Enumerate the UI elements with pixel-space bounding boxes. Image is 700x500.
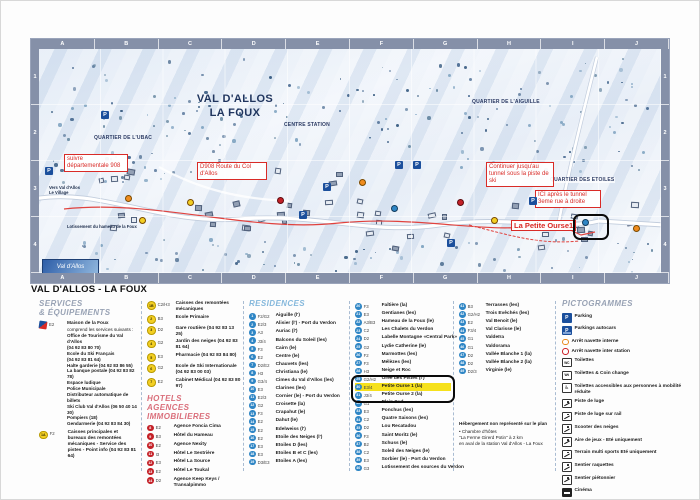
maison-foux-services: comprend les services suivants :Office d… [67,327,137,427]
grid-label: J [605,273,669,283]
map-grid-rows-left: 1234 [31,49,39,273]
legend-row: 40G3Lotissement des sources du Verdon [355,464,451,472]
legend-row: 41B3Terrasses (les) [459,302,553,310]
wc-icon: WC [562,358,572,368]
legend-marker: 16 [249,435,256,442]
legend-row: 4G2Jardin des neiges (04 92 83 81 64) [147,339,241,351]
note-hebergement: Hébergement non représenté sur le plan •… [459,421,553,448]
grid-ref: E3 [364,457,380,463]
grid-ref: F3 [258,410,274,416]
legend-marker: 49 [459,368,466,375]
pictogram-row: PParkings autocars [562,326,694,336]
legend-marker: 48 [459,360,466,367]
pictogram-row: W¢Toilettes & Coin change [562,371,694,381]
legend-item-label: Hôtel La Source [174,459,211,465]
callout-ici-apres-tunnel: ICI après le tunnel 3eme rue à droite [535,190,601,208]
map-marker-blue [582,219,589,226]
legend-row: 35D2Lou Recatadou [355,423,451,431]
legend-item-label: Hôtel Le Toukal [174,468,209,474]
pictogram-label: Scooter des neiges [575,424,619,430]
grid-ref: I3 [156,451,172,457]
grid-ref: D2 [364,335,380,341]
legend-marker: 3 [147,326,156,335]
legend-row: 9B3Hôtel du Hameau [147,433,241,440]
grid-ref: D2/3 [468,368,484,374]
legend-item-label: Etoiles D (les) [276,443,308,449]
legend-marker: 5 [249,346,256,353]
legend-item-label: Valdorama [486,344,510,350]
legend-item-label: Soleil des Neiges (le) [382,449,430,455]
pictogram-row: ♿Toilettes accessibles aux personnes à m… [562,383,694,395]
parking-icon: P [101,111,109,119]
grid-label: B [95,273,159,283]
legend-row: 15E2Edelweiss (l') [249,426,347,434]
pictogram-label: Arrêt navette inter station [572,348,630,354]
pictogrammes-header: PICTOGRAMMES [562,299,694,308]
legend-row: 6G2Ecole de Ski Internationale (04 92 83… [147,364,241,376]
legend-item-label: Les Chalets du Verdon [382,327,434,333]
pictogram-label: Aire de jeux - Eté uniquement [575,437,642,443]
residences-list-3: 41B3Terrasses (les) 42G2/H2Trois Evêchés… [459,302,553,375]
legend-marker: 26 [355,352,362,359]
map-grid-letters-top: ABCDEFGHIJ [31,39,669,49]
pictogram-row: Arrêt navette interne [562,339,694,346]
parking-icon: P [395,161,403,169]
legend-row: 7D2/E2Chauvets (les) [249,361,347,369]
note-line: en aval de la station Val d'Allos - La F… [459,441,553,447]
legend-marker: 4 [147,340,156,349]
legend-marker: 1B [147,301,156,310]
grid-ref: F2 [364,352,380,358]
legend-marker: 23 [355,327,362,334]
pictogram-row: Aire de jeux - Eté uniquement [562,437,694,447]
val-dallos-logo: Val d'Allos [42,259,99,273]
parking-icon: P [45,167,53,175]
legend-row: 24D2Labelle Montagne «Central Park» [355,334,451,342]
legend-item-label: Pharmacie (04 92 83 84 80) [176,353,237,359]
hotels-list: 8E2Agence Foncia Cima 9B3Hôtel du Hameau… [147,424,241,489]
legend-item-label: Lydie Catherine (le) [382,344,426,350]
map-marker-orange [125,195,132,202]
parking-icon: P [323,183,331,191]
legend-item-label: Aiguille (l') [276,313,300,319]
grid-label: D [222,273,286,283]
grid-ref: A3 [258,329,274,335]
grid-label: 4 [31,217,39,273]
grid-ref: E2 [49,321,65,327]
pictogram-row: Terrain multi sports Eté uniquement [562,450,694,460]
legend-marker: 3 [249,329,256,336]
legend-row: 8H3Christiana (le) [249,369,347,377]
legend-marker: 28 [355,368,362,375]
label-quartier-etoiles: QUARTIER DES ETOILES [549,177,615,183]
legend-marker: 37 [355,441,362,448]
legend-row: 2E2/3Alisier (l') - Port du Verdon [249,320,347,328]
shuttle-internal-icon [562,339,569,346]
legend-marker: 11 [249,394,256,401]
pictogram-label: Parking [575,313,593,319]
legend-item-label: Vallée Blanche 2 (la) [486,360,532,366]
grid-ref: J3/4 [258,338,274,344]
map-marker-yellow [491,217,498,224]
legend-marker: 15 [249,426,256,433]
legend-item-label: Gare routière (04 92 83 13 25) [176,326,241,338]
legend-marker: 24 [355,335,362,342]
grid-ref: B3 [158,315,174,321]
legend-row: 12E3Hôtel La Source [147,459,241,466]
legend-item-label: Croisette (la) [276,402,305,408]
grid-label: J [605,39,669,49]
grid-ref: G3 [364,465,380,471]
map-grid-letters-bottom: ABCDEFGHIJ [31,273,669,283]
legend-marker: 8 [147,425,154,432]
grid-ref: H3 [364,368,380,374]
legend-row: 23C2Les Chalets du Verdon [355,326,451,334]
legend-residences-column-1: RESIDENCES 1F2/G2Aiguille (l') 2E2/3Alis… [249,299,347,466]
legend-pictogrammes-column: PICTOGRAMMES PParkingPParkings autocarsA… [562,299,694,500]
legend-marker: 14 [147,477,154,484]
caisses-principales-text: Caisses principales et bureaux des remon… [68,430,137,460]
legend-row: 10E2Agence Nexity [147,442,241,449]
grid-ref: F3 [364,303,380,309]
grid-label: 3 [661,161,669,217]
label-la-petite-ourse: La Petite Ourse1 [511,220,576,231]
grid-label: B [95,39,159,49]
legend-row: 16E2Etoile des Neiges (l') [249,434,347,442]
grid-label: A [31,273,95,283]
legend-item-label: Labelle Montagne «Central Park» [382,335,457,341]
grid-ref: B2 [364,441,380,447]
legend-marker: 43 [459,319,466,326]
maison-foux-logo-icon [38,321,47,330]
legend-item-label: Val Clarisse (le) [486,327,521,333]
parking-icon: P [299,211,307,219]
grid-label: 2 [661,105,669,161]
legend-row: 9G3/4Cimes du Val d'Allos (les) [249,377,347,385]
legend-item-label: Virginie (le) [486,368,512,374]
map-marker-orange [633,225,640,232]
legend-marker-1a: 1A [39,431,48,440]
grid-ref: E2 [258,427,274,433]
pictogram-row: Cinéma [562,488,694,498]
legend-item-label: Agence Keep Keys / Transalpimmo [174,477,241,489]
legend-row: 12G2Croisette (la) [249,401,347,409]
legend-item-label: Neige et Roc [382,368,411,374]
map-marker-orange [359,179,366,186]
legend-item-label: Vallée Blanche 1 (la) [486,352,532,358]
legend-marker: 6 [249,354,256,361]
legend-item-label: Ecole de Ski Internationale (04 92 83 00… [176,364,241,376]
legend-marker: 18 [249,451,256,458]
grid-ref: G2 [158,364,174,370]
grid-ref: F3/4 [468,327,484,333]
wc-access-icon: ♿ [562,383,572,393]
map-marker-yellow [187,199,194,206]
grid-ref: C2 [364,327,380,333]
legend-residences-column-3: 41B3Terrasses (les) 42G2/H2Trois Evêchés… [459,302,553,448]
callout-continuer-tunnel: Continuer jusqu'au tunnel sous la piste … [486,162,554,187]
maison-foux-block: Maison de la Foux comprend les services … [67,321,137,427]
grid-ref: E2 [468,319,484,325]
legend-marker: 41 [459,303,466,310]
legend-row: 7E2Cabinet Médical (04 92 83 80 97) [147,378,241,390]
legend-row: 38C2Soleil des Neiges (le) [355,448,451,456]
legend-row: 3A3Auriac (l') [249,328,347,336]
legend-item-label: Ecole Primaire [176,315,209,321]
map-marker-red [277,197,284,204]
legend-row: 21E3Gentianes (les) [355,310,451,318]
maison-service-line: La banque postale (04 92 83 82 78) [67,368,137,380]
legend-residences-column-2: 20F3Faîtière (la) 21E3Gentianes (les) 22… [355,302,451,472]
legend-item-label: Caisses des remontées mécaniques [176,301,241,313]
legend-item-label: Ponchus (les) [382,408,413,414]
legend-item-label: Cornier (le) - Port du Verdon [276,394,340,400]
pictogram-row: Arrêt navette inter station [562,348,694,355]
legend-item-label: Dahut (le) [276,418,298,424]
legend-item-label: Gentianes (les) [382,311,416,317]
grid-ref: B3 [156,433,172,439]
grid-label: C [159,273,223,283]
legend-marker: 36 [355,432,362,439]
grid-ref: A3/B3 [364,319,380,325]
legend-row: 3D2Gare routière (04 92 83 13 25) [147,326,241,338]
legend-divider [349,301,350,471]
legend-row: 22A3/B3Hameau de la Foux (le) [355,318,451,326]
maison-service-line: Ski Club Val d'Allos (06 50 40 14 30) [67,404,137,416]
legend-row: 4J3/4Balcons du Soleil (les) [249,336,347,344]
grid-label: 1 [661,49,669,105]
legend-item-label: Terrasses (les) [486,303,520,309]
legend-row: 5E3Pharmacie (04 92 83 84 80) [147,353,241,362]
legend-row: 11E2/3Cornier (le) - Port du Verdon [249,393,347,401]
legend-row: 46G1Valdorama [459,342,553,350]
grid-ref: E2 [258,435,274,441]
legend-row: 10E3Clarines (les) [249,385,347,393]
legend-item-label: Balcons du Soleil (les) [276,338,327,344]
legend-item-label: Lou Recatadou [382,424,417,430]
legend-marker: 1 [249,313,256,320]
legend-marker: 46 [459,343,466,350]
grid-label: H [478,273,542,283]
pictogrammes-list: PParkingPParkings autocarsArrêt navette … [562,313,694,497]
legend-marker: 19 [249,459,256,466]
maison-service-line: Gendarmerie (04 92 83 84 30) [67,421,137,427]
wc-change-icon: W¢ [562,371,572,381]
pictogram-label: Parkings autocars [575,326,617,332]
grid-ref: D2 [468,360,484,366]
pictogram-label: Piste de luge sur rail [575,412,622,418]
legend-row: 17E3Etoiles D (les) [249,442,347,450]
legend-item-label: Saint Moritz (le) [382,433,418,439]
grid-label: D [222,39,286,49]
legend-row: 47D2Vallée Blanche 1 (la) [459,351,553,359]
pictogram-label: Sentier raquettes [575,462,614,468]
grid-label: 4 [661,217,669,273]
legend-marker: 35 [355,424,362,431]
grid-ref: E3 [364,311,380,317]
legend-item-label: Alisier (l') - Port du Verdon [276,321,336,327]
grid-ref: E2 [158,378,174,384]
legend-item-label: Centre (le) [276,354,300,360]
legend-item-label: Lotissement des sources du Verdon [382,465,464,471]
pictogram-label: Terrain multi sports Eté uniquement [575,450,657,456]
cinema-icon [562,488,572,498]
grid-ref: D3/E3 [258,459,274,465]
grid-label: 2 [31,105,39,161]
legend-row: 43E2Val Benoit (le) [459,318,553,326]
legend-item-label: Crapahut (le) [276,410,306,416]
legend-row: 36F3Saint Moritz (le) [355,432,451,440]
grid-ref: B3 [468,303,484,309]
playground-icon [562,437,572,447]
legend-row: 11I3Hôtel Le Sestrière [147,451,241,458]
residences-header: RESIDENCES [249,299,347,308]
legend-marker: 10 [249,386,256,393]
legend-item-label: Agence Foncia Cima [174,424,221,430]
legend-row: 34C2Quatre Saisons (les) [355,415,451,423]
legend-item-label: Chauvets (les) [276,362,309,368]
legend-marker: 42 [459,311,466,318]
legend-title: VAL D'ALLOS - LA FOUX [31,284,147,295]
legend-item-label: Hôtel Le Sestrière [174,451,215,457]
legend-item-label: Mélèzes (les) [382,360,412,366]
legend-item-label: Quatre Saisons (les) [382,416,428,422]
legend-row: 27F3Mélèzes (les) [355,359,451,367]
legend-item-label: Sorbier (le) - Port du Verdon [382,457,446,463]
pictogram-label: Toilettes accessibles aux personnes à mo… [575,383,695,395]
pictogram-row: Sentier piétonnier [562,475,694,485]
legend-marker: 17 [249,443,256,450]
legend-marker: 45 [459,335,466,342]
grid-ref: E2/3 [258,321,274,327]
legend-row: 14D2Agence Keep Keys / Transalpimmo [147,477,241,489]
legend-item-label: Cimes du Val d'Allos (les) [276,378,334,384]
legend-item-label: Etoiles B et C (les) [276,451,318,457]
legend-item-label: Jardin des neiges (04 92 83 81 64) [176,339,241,351]
legend-row: 49D2/3Virginie (le) [459,367,553,375]
grid-ref: G3/4 [258,378,274,384]
grid-label: E [286,273,350,283]
legend-marker: 39 [355,457,362,464]
grid-ref: F2/G2 [258,313,274,319]
label-vers-village: Vers Val d'Allos Le Village [49,185,81,195]
legend-item-label: Christiana (le) [276,370,308,376]
legend-row: 1BC2/H3Caisses des remontées mécaniques [147,301,241,313]
label-quartier-aiguille: QUARTIER DE L'AIGUILLE [472,99,540,105]
legend-row: 33E3Ponchus (les) [355,407,451,415]
luge-icon [562,399,572,409]
legend-row: 45G1Valdeïra [459,334,553,342]
legend-marker: 21 [355,311,362,318]
map-marker-yellow [139,217,146,224]
legend-row: 13E2Hôtel Le Toukal [147,468,241,475]
grid-label: I [541,273,605,283]
legend-marker: 22 [355,319,362,326]
legend-marker: 8 [249,370,256,377]
residences-list-1: 1F2/G2Aiguille (l') 2E2/3Alisier (l') - … [249,312,347,466]
bus-icon: P [562,326,572,336]
legend-marker: 6 [147,364,156,373]
legend-item-label: Cabinet Médical (04 92 83 80 97) [176,378,241,390]
label-centre-station: CENTRE STATION [284,122,330,128]
legend-marker: 12 [147,460,154,467]
map-marker-blue [391,205,398,212]
maison-foux-name: Maison de la Foux [67,321,109,326]
grid-label: G [414,39,478,49]
grid-ref: C2 [364,416,380,422]
grid-ref: E3 [156,459,172,465]
legend-marker: 9 [147,433,154,440]
legend-row: 39E3Sorbier (le) - Port du Verdon [355,456,451,464]
grid-ref: E2 [156,424,172,430]
grid-ref: G1 [468,344,484,350]
legend-marker: 9 [249,378,256,385]
legend-marker: 5 [147,353,156,362]
legend-divider [555,301,556,471]
legend-marker: 12 [249,402,256,409]
parking-icon: P [562,313,572,323]
legend-row: 28H3Neige et Roc [355,367,451,375]
map-title: VAL D'ALLOSLA FOUX [189,92,281,121]
legend-item-label: Valdeïra [486,335,504,341]
legend-item-label: Clarines (les) [276,386,306,392]
luge-rail-icon [562,412,572,422]
legend-row: 1F2/G2Aiguille (l') [249,312,347,320]
callout-suivre-d908: suivre départementale 908 [64,154,128,172]
map-marker-red [457,199,464,206]
legend-marker: 33 [355,408,362,415]
label-quartier-ubac: QUARTIER DE L'UBAC [94,135,152,141]
grid-ref: C2/H3 [158,301,174,307]
grid-ref: D2 [158,326,174,332]
grid-ref: H3 [258,370,274,376]
grid-ref: G2 [258,402,274,408]
legend-item-label: Schuss (le) [382,441,408,447]
legend-marker: 25 [355,343,362,350]
legend-marker: 27 [355,360,362,367]
legend-marker: 47 [459,352,466,359]
legend-marker: 2 [147,315,156,324]
grid-label: 1 [31,49,39,105]
parking-icon: P [413,161,421,169]
grid-label: F [350,39,414,49]
grid-label: G [414,273,478,283]
legend-row: 14E2Dahut (le) [249,417,347,425]
legend-item-label: Hôtel du Hameau [174,433,213,439]
grid-ref: D2/E2 [258,362,274,368]
legend-marker: 4 [249,337,256,344]
legend-item-label: Edelweiss (l') [276,427,306,433]
legend-marker: 13 [147,468,154,475]
legend-row: 2B3Ecole Primaire [147,315,241,324]
grid-ref: G2 [364,344,380,350]
legend-marker: 44 [459,327,466,334]
map-roads-and-route [39,49,661,273]
legend-item-label: Val Benoit (le) [486,319,518,325]
legend-item-label: Trois Evêchés (les) [486,311,529,317]
grid-ref: D2 [468,352,484,358]
map-canvas: VAL D'ALLOSLA FOUX QUARTIER DE L'UBAC CE… [39,49,661,273]
legend-row: 48D2Vallée Blanche 2 (la) [459,359,553,367]
pictogram-row: WCToilettes [562,358,694,368]
grid-label: F [350,273,414,283]
highlight-box-petite-ourse-legend [351,375,455,403]
legend-item-label: Marmottes (les) [382,352,417,358]
grid-ref: E3 [258,451,274,457]
parking-icon: P [529,197,537,205]
pictogram-label: Piste de luge [575,399,605,405]
legend-item-label: Cairn (le) [276,346,297,352]
